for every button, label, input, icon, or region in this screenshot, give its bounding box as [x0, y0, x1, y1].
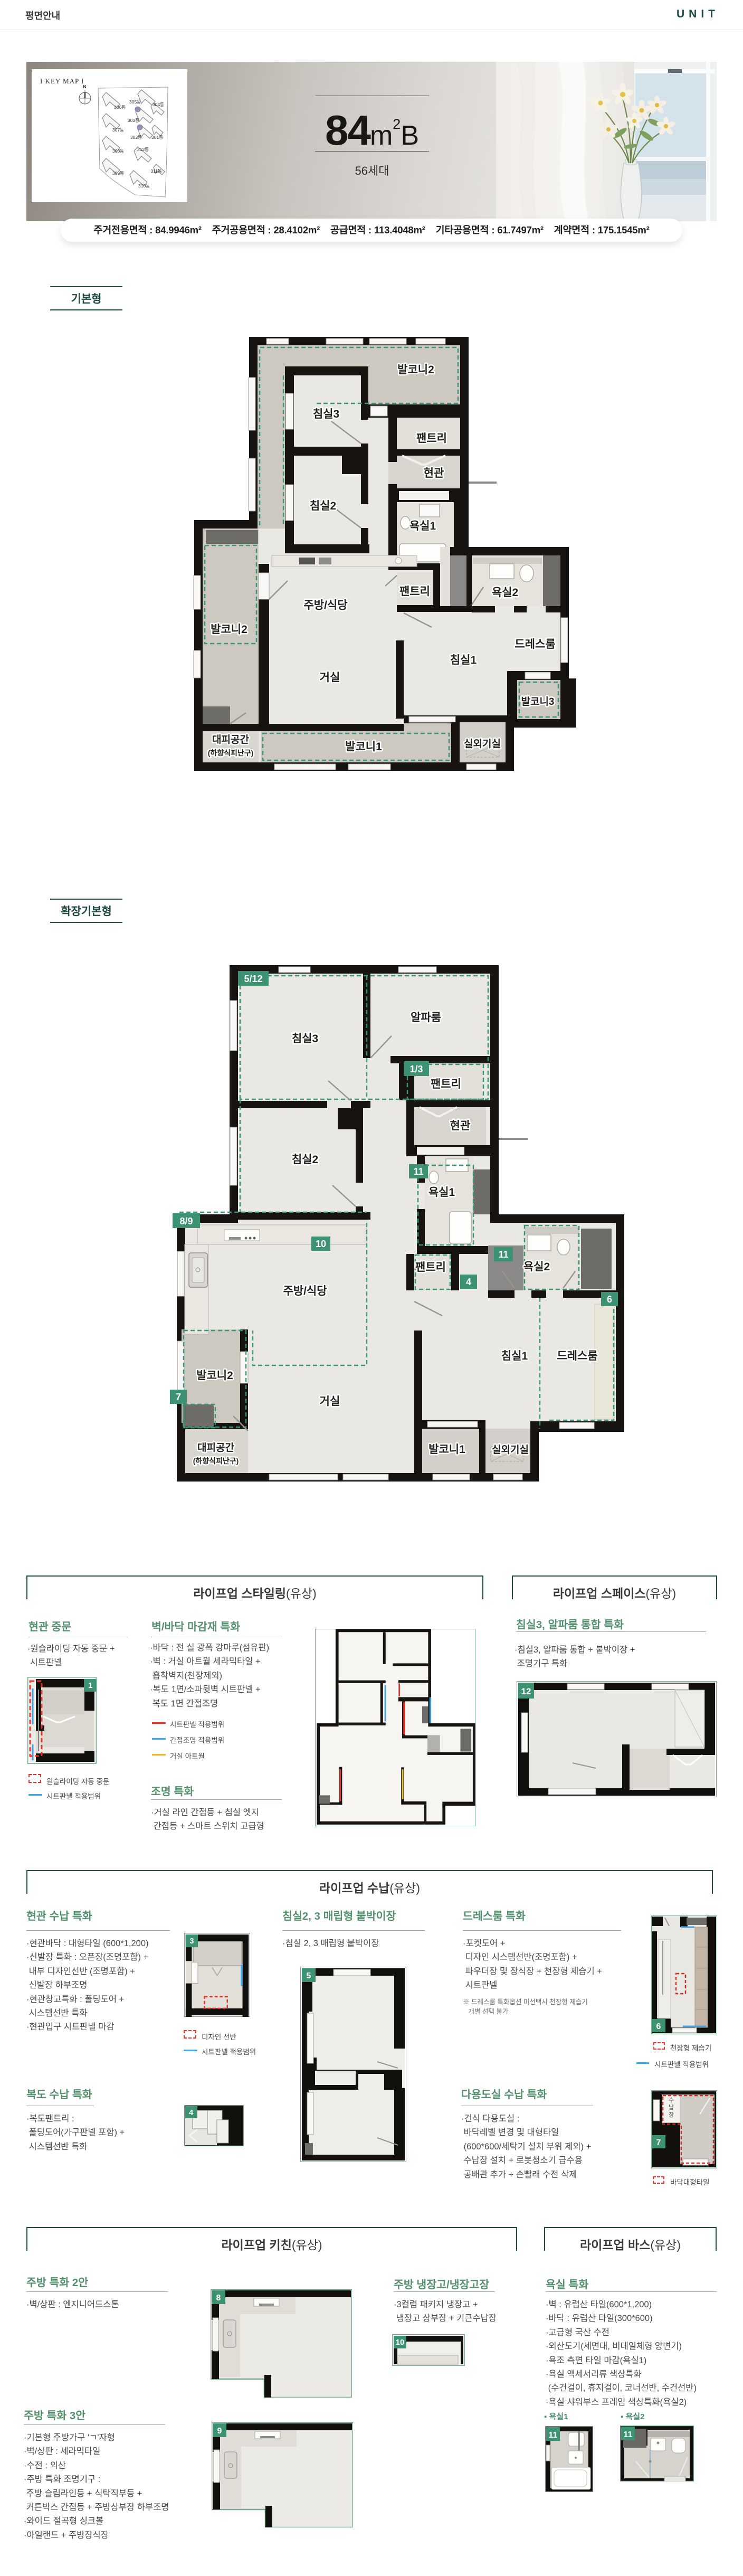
- svg-text:침실1: 침실1: [501, 1350, 528, 1362]
- svg-text:4: 4: [466, 1277, 471, 1287]
- svg-text:팬트리: 팬트리: [399, 586, 430, 598]
- svg-text:7: 7: [656, 2138, 661, 2147]
- svg-text:7: 7: [176, 1392, 181, 1402]
- svg-text:주방/식당: 주방/식당: [283, 1285, 327, 1297]
- svg-text:5: 5: [307, 1971, 311, 1980]
- svg-text:발코니1: 발코니1: [428, 1443, 465, 1456]
- svg-text:8: 8: [216, 2294, 221, 2303]
- svg-text:1/3: 1/3: [409, 1064, 423, 1074]
- svg-text:발코니1: 발코니1: [345, 741, 382, 753]
- svg-text:발코니2: 발코니2: [211, 624, 247, 636]
- svg-text:6: 6: [607, 1294, 612, 1305]
- svg-text:(하향식피난구): (하향식피난구): [193, 1457, 239, 1465]
- svg-text:발코니2: 발코니2: [196, 1370, 233, 1382]
- svg-text:욕실1: 욕실1: [428, 1186, 455, 1199]
- svg-text:4: 4: [189, 2108, 194, 2117]
- svg-text:대피공간: 대피공간: [212, 734, 249, 746]
- svg-text:드레스룸: 드레스룸: [515, 638, 555, 650]
- svg-text:(하향식피난구): (하향식피난구): [208, 749, 254, 757]
- svg-text:311동: 311동: [150, 168, 162, 174]
- svg-text:N: N: [83, 84, 87, 89]
- svg-text:침실3: 침실3: [292, 1033, 318, 1045]
- svg-text:거실: 거실: [320, 1395, 340, 1408]
- svg-text:침실3: 침실3: [313, 408, 339, 420]
- svg-text:11: 11: [549, 2431, 558, 2440]
- svg-text:9: 9: [217, 2427, 222, 2436]
- svg-text:실외기실: 실외기실: [492, 1444, 529, 1456]
- svg-text:수: 수: [669, 2097, 674, 2103]
- svg-text:309동: 309동: [112, 171, 124, 176]
- svg-text:I KEY MAP I: I KEY MAP I: [40, 77, 84, 85]
- svg-text:팬트리: 팬트리: [415, 1261, 446, 1273]
- svg-text:11: 11: [624, 2430, 633, 2439]
- svg-text:6: 6: [656, 2022, 661, 2031]
- svg-text:팬트리: 팬트리: [431, 1078, 461, 1090]
- svg-text:3: 3: [189, 1937, 194, 1946]
- svg-text:주방/식당: 주방/식당: [303, 599, 347, 611]
- svg-text:304동: 304동: [153, 102, 164, 107]
- svg-text:1: 1: [88, 1681, 92, 1690]
- svg-text:10: 10: [396, 2338, 405, 2347]
- svg-text:욕실2: 욕실2: [523, 1261, 550, 1273]
- svg-text:알파룸: 알파룸: [411, 1012, 441, 1024]
- svg-text:팬트리: 팬트리: [416, 432, 447, 445]
- svg-text:301동: 301동: [151, 135, 163, 140]
- svg-text:303동: 303동: [128, 118, 139, 123]
- svg-text:310동: 310동: [138, 183, 150, 188]
- svg-text:308동: 308동: [112, 148, 124, 154]
- svg-text:5/12: 5/12: [244, 974, 262, 984]
- svg-text:8/9: 8/9: [179, 1216, 193, 1226]
- svg-text:대피공간: 대피공간: [197, 1442, 234, 1454]
- svg-text:312동: 312동: [137, 147, 149, 152]
- svg-text:현관: 현관: [424, 467, 444, 479]
- svg-text:침실1: 침실1: [450, 654, 477, 666]
- svg-text:욕실2: 욕실2: [492, 587, 518, 599]
- svg-text:305동: 305동: [129, 99, 141, 105]
- svg-text:발코니2: 발코니2: [397, 364, 434, 376]
- svg-text:침실2: 침실2: [310, 500, 336, 512]
- svg-text:12: 12: [521, 1686, 531, 1696]
- svg-text:드레스룸: 드레스룸: [557, 1350, 597, 1362]
- svg-text:306동: 306동: [114, 105, 126, 110]
- svg-text:11: 11: [413, 1166, 423, 1177]
- svg-text:장: 장: [669, 2111, 674, 2118]
- svg-text:침실2: 침실2: [292, 1154, 318, 1166]
- svg-text:발코니3: 발코니3: [521, 696, 554, 707]
- svg-text:납: 납: [669, 2104, 674, 2111]
- svg-text:실외기실: 실외기실: [464, 738, 501, 750]
- svg-text:현관: 현관: [450, 1120, 471, 1132]
- svg-text:거실: 거실: [320, 672, 340, 684]
- svg-text:욕실1: 욕실1: [409, 520, 436, 532]
- svg-text:307동: 307동: [112, 127, 124, 133]
- svg-text:302동: 302동: [130, 135, 142, 140]
- svg-text:11: 11: [498, 1249, 508, 1260]
- svg-text:10: 10: [316, 1239, 326, 1249]
